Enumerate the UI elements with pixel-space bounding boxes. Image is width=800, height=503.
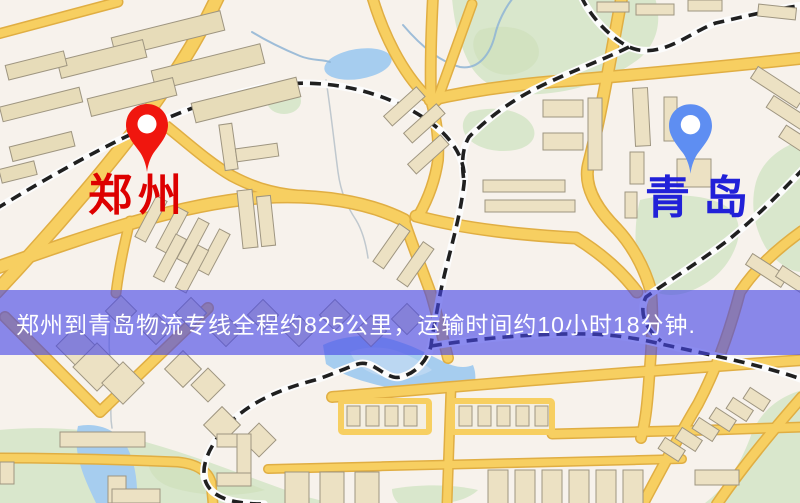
- map-view[interactable]: 郑州 青岛 郑州到青岛物流专线全程约825公里，运输时间约10小时18分钟.: [0, 0, 800, 503]
- map-canvas: [0, 0, 800, 503]
- destination-pin-icon[interactable]: [668, 103, 713, 175]
- origin-pin-icon[interactable]: [125, 103, 169, 173]
- route-info-text: 郑州到青岛物流专线全程约825公里，运输时间约10小时18分钟.: [16, 306, 696, 340]
- route-info-banner: 郑州到青岛物流专线全程约825公里，运输时间约10小时18分钟.: [0, 290, 800, 355]
- destination-label: 青岛: [628, 176, 778, 221]
- origin-label: 郑州: [62, 174, 214, 218]
